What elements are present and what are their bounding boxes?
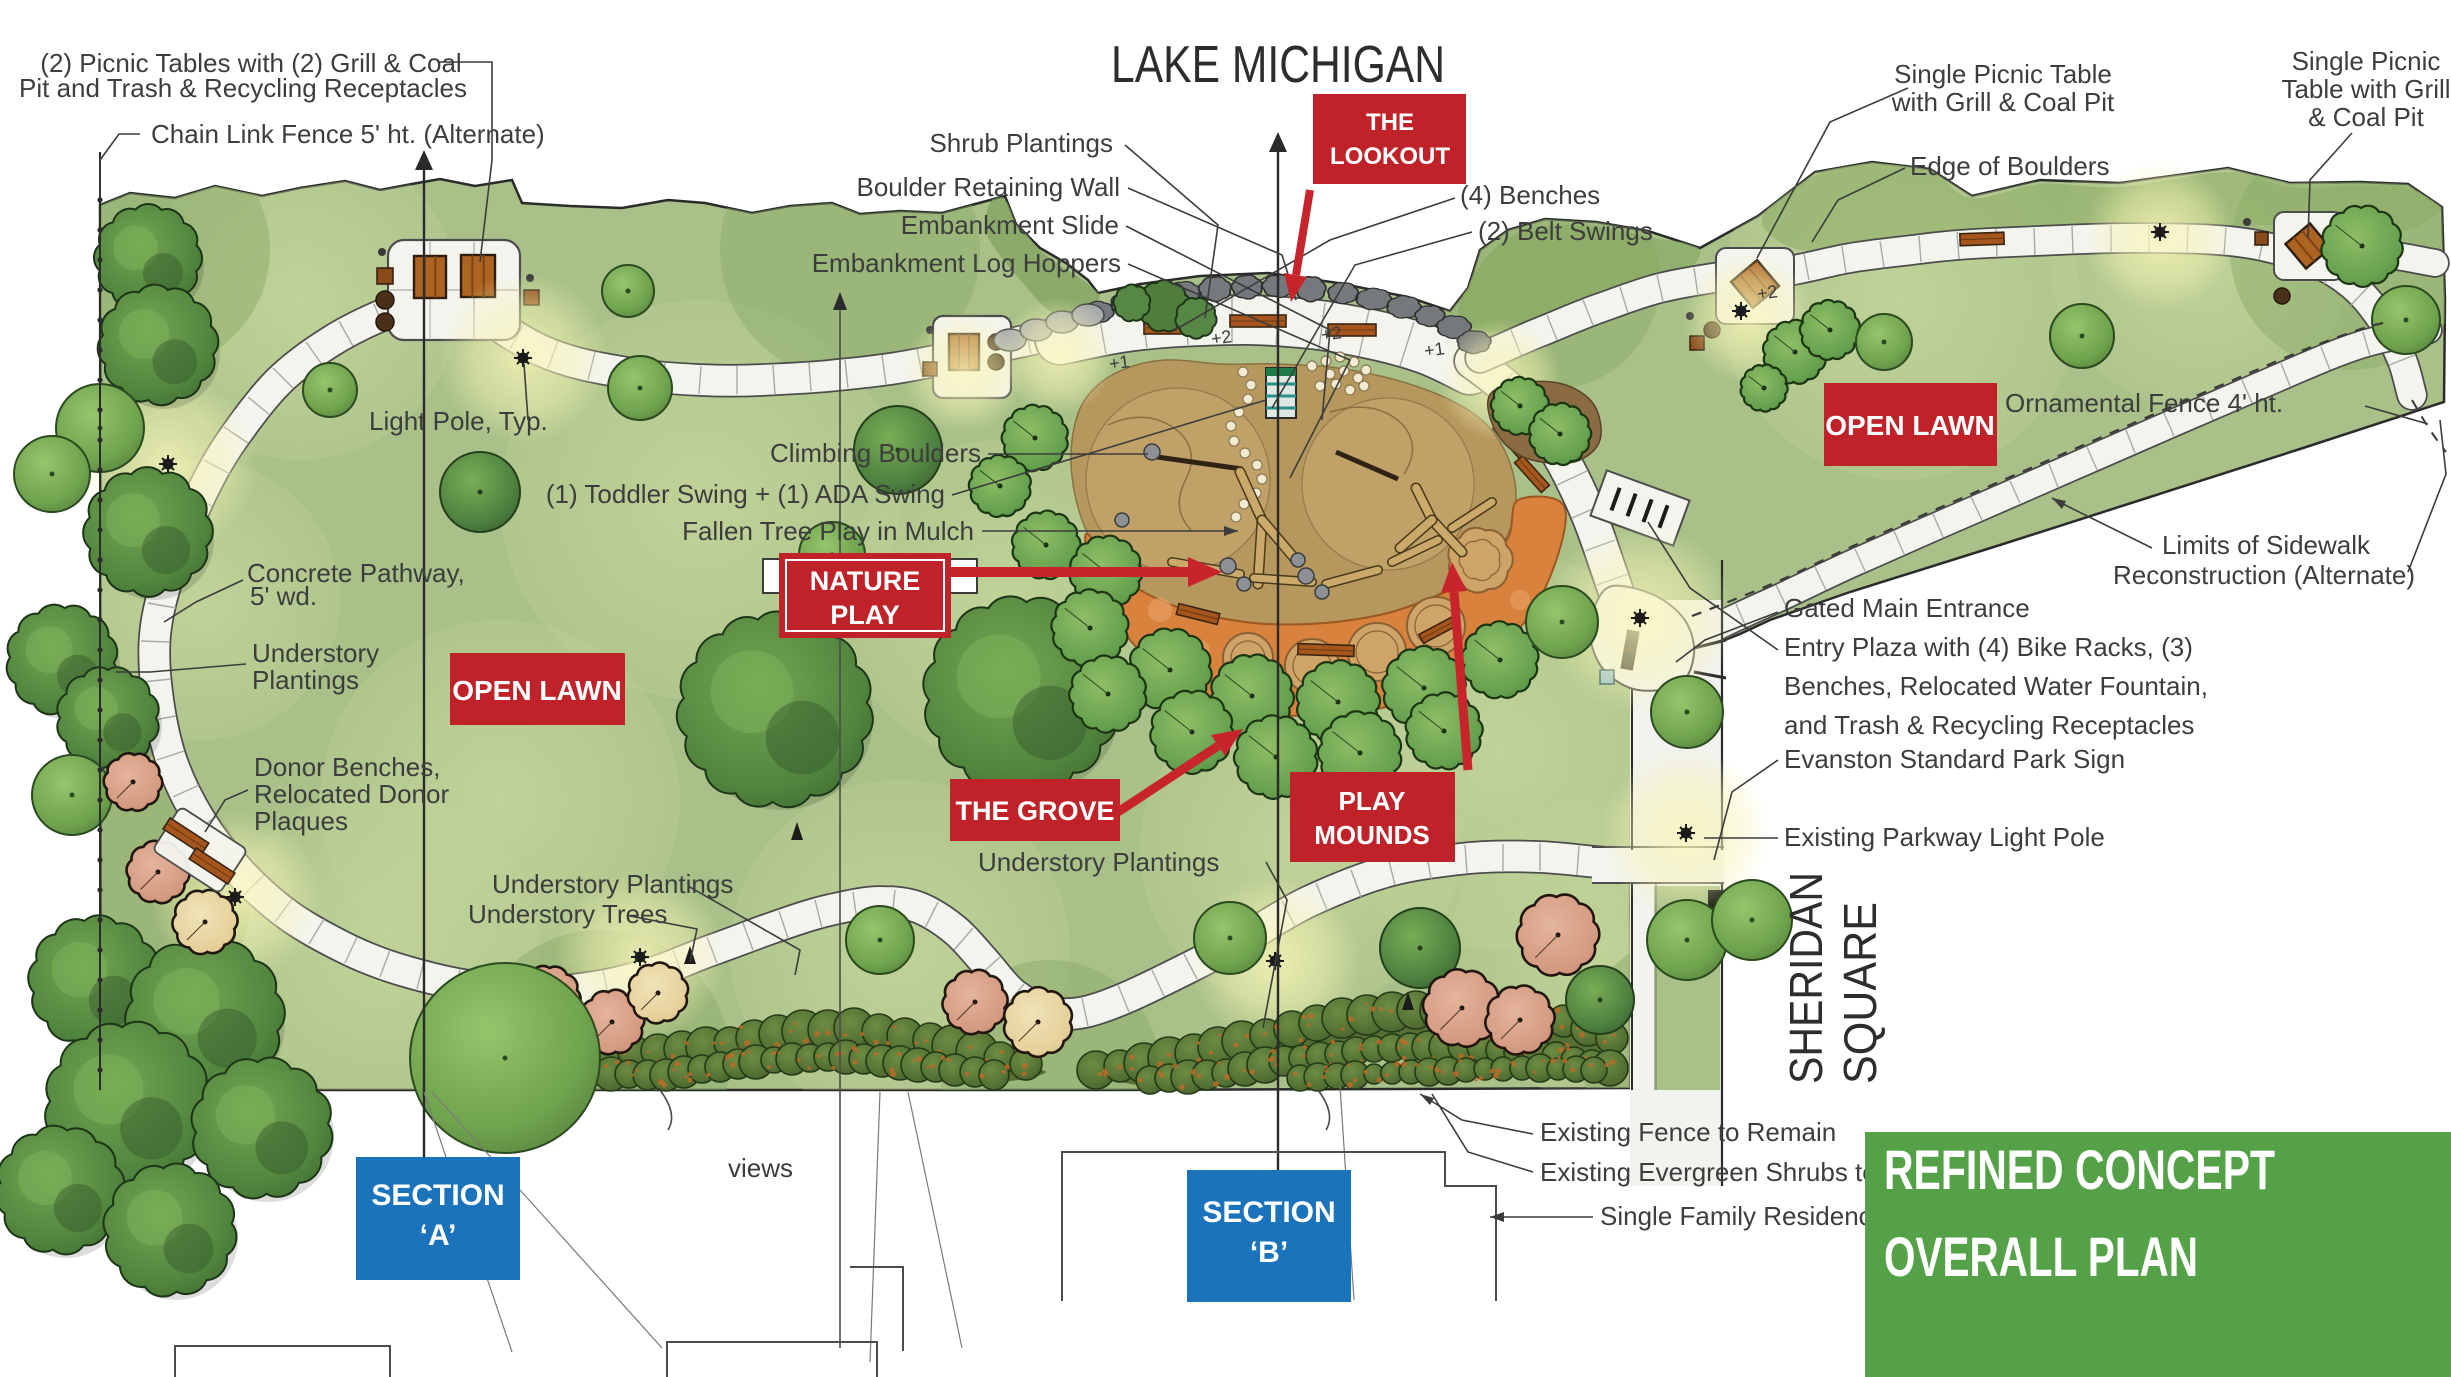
svg-text:+2: +2 [1210, 326, 1233, 349]
svg-text:Existing Parkway Light Pole: Existing Parkway Light Pole [1784, 822, 2105, 852]
svg-text:Table with Grill: Table with Grill [2281, 74, 2450, 104]
svg-text:Edge of Boulders: Edge of Boulders [1910, 151, 2109, 181]
svg-text:Single Picnic: Single Picnic [2292, 46, 2441, 76]
svg-text:PLAY: PLAY [1339, 786, 1406, 816]
svg-text:Relocated Donor: Relocated Donor [254, 779, 449, 809]
svg-text:OVERALL PLAN: OVERALL PLAN [1884, 1225, 2198, 1288]
svg-text:(2) Belt Swings: (2) Belt Swings [1478, 216, 1653, 246]
svg-text:LOOKOUT: LOOKOUT [1330, 143, 1450, 170]
svg-text:+2: +2 [1756, 281, 1779, 304]
svg-text:MOUNDS: MOUNDS [1314, 820, 1430, 850]
svg-text:Existing Fence to Remain: Existing Fence to Remain [1540, 1117, 1836, 1147]
svg-text:Donor Benches,: Donor Benches, [254, 752, 440, 782]
svg-text:(4) Benches: (4) Benches [1460, 180, 1600, 210]
svg-text:Embankment Log Hoppers: Embankment Log Hoppers [812, 248, 1121, 278]
svg-text:Embankment Slide: Embankment Slide [901, 210, 1119, 240]
svg-text:Understory: Understory [252, 638, 379, 668]
svg-text:Shrub Plantings: Shrub Plantings [929, 128, 1113, 158]
svg-text:with Grill & Coal Pit: with Grill & Coal Pit [1891, 87, 2115, 117]
svg-text:Single Picnic Table: Single Picnic Table [1894, 59, 2112, 89]
svg-text:Evanston Standard Park Sign: Evanston Standard Park Sign [1784, 744, 2125, 774]
svg-text:REFINED CONCEPT: REFINED CONCEPT [1884, 1138, 2275, 1201]
svg-text:THE: THE [1366, 109, 1414, 136]
svg-text:LAKE MICHIGAN: LAKE MICHIGAN [1111, 36, 1445, 94]
svg-text:Light Pole, Typ.: Light Pole, Typ. [369, 406, 548, 436]
svg-text:SECTION: SECTION [371, 1179, 504, 1212]
svg-text:Plantings: Plantings [252, 665, 359, 695]
svg-text:Understory Plantings: Understory Plantings [492, 869, 733, 899]
svg-text:and Trash & Recycling Receptac: and Trash & Recycling Receptacles [1784, 710, 2194, 740]
svg-text:Benches, Relocated Water Fount: Benches, Relocated Water Fountain, [1784, 671, 2208, 701]
svg-text:Single Family Residence: Single Family Residence [1600, 1201, 1886, 1231]
svg-text:Climbing Boulders: Climbing Boulders [770, 438, 981, 468]
svg-text:‘B’: ‘B’ [1250, 1236, 1288, 1269]
svg-text:OPEN LAWN: OPEN LAWN [1825, 410, 1995, 441]
svg-text:Entry Plaza with (4) Bike Rack: Entry Plaza with (4) Bike Racks, (3) [1784, 632, 2193, 662]
svg-text:Boulder Retaining Wall: Boulder Retaining Wall [856, 172, 1120, 202]
svg-text:OPEN LAWN: OPEN LAWN [452, 675, 622, 706]
svg-text:+2: +2 [1320, 322, 1343, 345]
svg-text:+1: +1 [1108, 351, 1131, 374]
svg-text:Pit and Trash & Recycling Rece: Pit and Trash & Recycling Receptacles [19, 73, 467, 103]
svg-text:(1) Toddler Swing + (1) ADA Sw: (1) Toddler Swing + (1) ADA Swing [546, 479, 945, 509]
svg-text:SECTION: SECTION [1202, 1196, 1335, 1229]
svg-text:Fallen Tree Play in Mulch: Fallen Tree Play in Mulch [682, 516, 974, 546]
svg-text:& Coal Pit: & Coal Pit [2308, 102, 2424, 132]
svg-text:PLAY: PLAY [830, 600, 900, 630]
svg-text:THE GROVE: THE GROVE [955, 796, 1114, 826]
svg-text:SHERIDAN: SHERIDAN [1780, 872, 1832, 1084]
svg-text:Chain Link Fence 5' ht. (Alter: Chain Link Fence 5' ht. (Alternate) [151, 119, 545, 149]
svg-text:Understory Trees: Understory Trees [468, 899, 667, 929]
svg-text:Gated Main Entrance: Gated Main Entrance [1784, 593, 2030, 623]
svg-text:Understory Plantings: Understory Plantings [978, 847, 1219, 877]
svg-text:Plaques: Plaques [254, 806, 348, 836]
svg-text:Limits of Sidewalk: Limits of Sidewalk [2162, 530, 2371, 560]
svg-text:5' wd.: 5' wd. [250, 581, 317, 611]
svg-text:+1: +1 [1423, 338, 1446, 361]
svg-text:NATURE: NATURE [810, 566, 921, 596]
svg-text:views: views [728, 1153, 793, 1183]
svg-text:‘A’: ‘A’ [420, 1219, 457, 1252]
svg-text:SQUARE: SQUARE [1834, 902, 1886, 1084]
svg-text:Ornamental Fence 4' ht.: Ornamental Fence 4' ht. [2005, 388, 2283, 418]
svg-text:Reconstruction (Alternate): Reconstruction (Alternate) [2113, 560, 2415, 590]
